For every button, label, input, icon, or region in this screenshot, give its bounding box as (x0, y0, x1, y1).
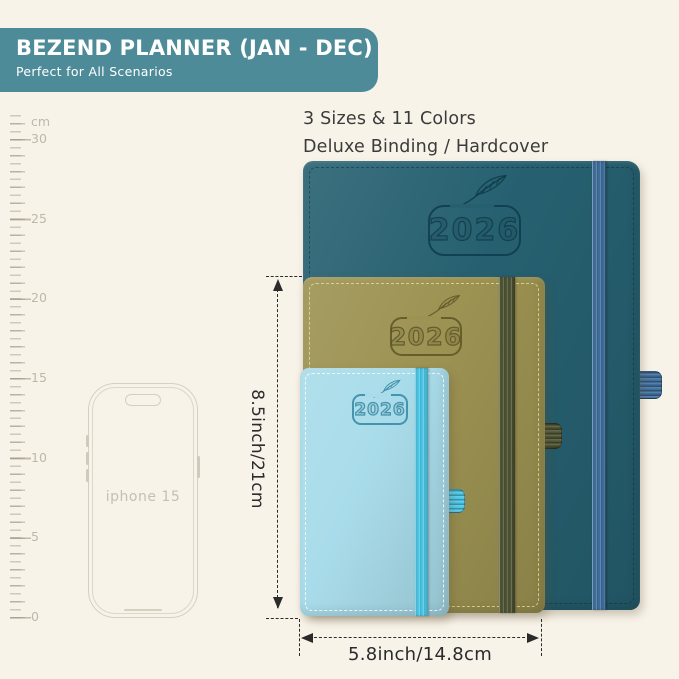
banner-subtitle: Perfect for All Scenarios (16, 64, 378, 79)
phone-volume-up-button (86, 452, 89, 465)
phone-outline: iphone 15 (88, 383, 198, 618)
ruler-tick-label: 0 (31, 609, 63, 624)
phone-mute-button (86, 435, 89, 447)
dim-arrow-line (309, 637, 535, 638)
ruler-5cm-ticks (10, 139, 31, 619)
info-sizes-colors: 3 Sizes & 11 Colors (303, 106, 548, 134)
phone-bottom-port (124, 609, 162, 612)
ruler-tick-label: 10 (31, 450, 63, 465)
dim-arrow-line (277, 284, 278, 608)
year-emboss-small: 2026 (352, 381, 412, 427)
banner-title: BEZEND PLANNER (JAN - DEC) (16, 36, 378, 60)
phone-power-button (197, 456, 200, 478)
year-text: 2026 (390, 323, 463, 351)
height-dimension-label: 8.5inch/21cm (245, 361, 267, 537)
emboss-frame-gap (450, 204, 495, 208)
emboss-frame: 2026 (428, 205, 521, 256)
width-dimension-label: 5.8inch/14.8cm (330, 644, 510, 665)
elastic-band-large (592, 161, 606, 610)
planner-small-blue: 2026 (300, 368, 449, 616)
product-info: 3 Sizes & 11 Colors Deluxe Binding / Har… (303, 106, 548, 161)
elastic-band-small (415, 368, 428, 616)
dim-cap (299, 619, 300, 656)
ruler-tick-label: 25 (31, 211, 63, 226)
arrow-down-icon (273, 597, 283, 609)
year-emboss-large: 2026 (428, 177, 538, 257)
year-text: 2026 (429, 213, 521, 248)
info-binding: Deluxe Binding / Hardcover (303, 134, 548, 162)
header-banner: BEZEND PLANNER (JAN - DEC) Perfect for A… (0, 28, 378, 92)
arrow-right-icon (527, 633, 539, 643)
dim-cap (266, 618, 298, 619)
ruler-tick-label: 15 (31, 370, 63, 385)
emboss-frame: 2026 (390, 317, 462, 356)
phone-volume-down-button (86, 469, 89, 482)
arrow-up-icon (273, 279, 283, 291)
ruler-tick-label: 20 (31, 290, 63, 305)
phone-label: iphone 15 (89, 489, 197, 505)
ruler-tick-label: 5 (31, 529, 63, 544)
dim-cap (541, 619, 542, 656)
ruler-tick-label: 30 (31, 131, 63, 146)
year-text: 2026 (354, 400, 405, 420)
emboss-frame-gap (365, 393, 391, 397)
dynamic-island-icon (125, 394, 161, 406)
dim-cap (266, 276, 302, 277)
emboss-frame: 2026 (352, 394, 408, 425)
arrow-left-icon (301, 633, 313, 643)
year-emboss-medium: 2026 (390, 295, 480, 357)
product-size-diagram: BEZEND PLANNER (JAN - DEC) Perfect for A… (0, 0, 679, 679)
emboss-frame-gap (407, 316, 441, 320)
ruler-unit-label: cm (31, 114, 63, 129)
elastic-band-medium (499, 277, 515, 613)
